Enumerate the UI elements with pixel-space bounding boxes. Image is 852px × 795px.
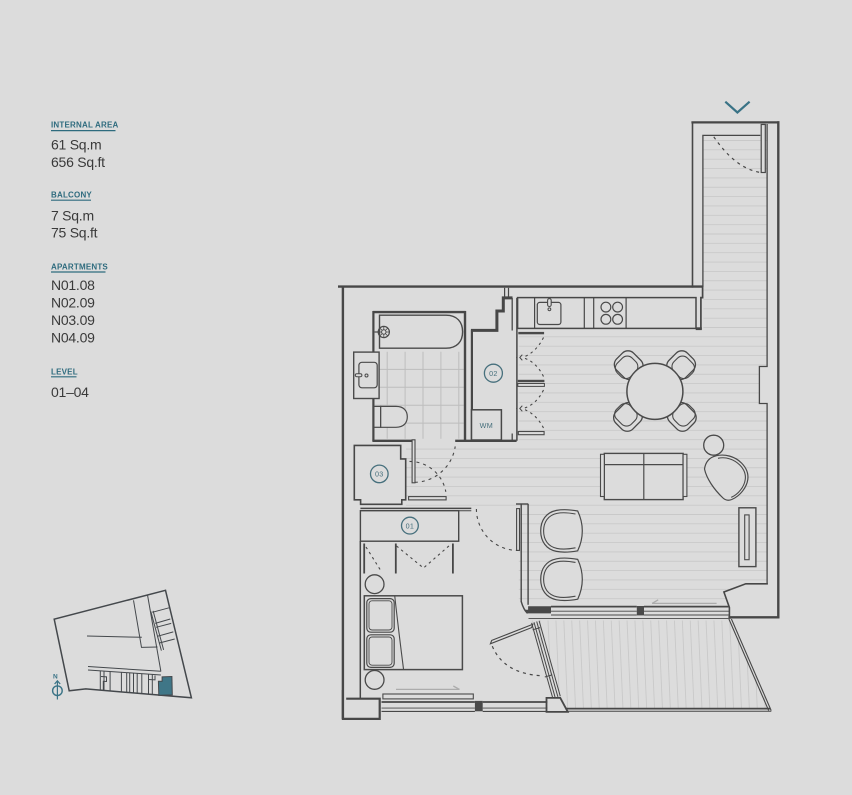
svg-text:N04.09: N04.09	[51, 330, 95, 346]
svg-text:02: 02	[489, 369, 498, 378]
svg-text:N02.09: N02.09	[51, 295, 95, 311]
svg-text:656 Sq.ft: 656 Sq.ft	[51, 154, 105, 170]
svg-text:APARTMENTS: APARTMENTS	[51, 263, 108, 272]
svg-text:01–04: 01–04	[51, 384, 89, 400]
svg-text:75 Sq.ft: 75 Sq.ft	[51, 225, 98, 241]
svg-text:7 Sq.m: 7 Sq.m	[51, 207, 94, 223]
svg-text:LEVEL: LEVEL	[51, 367, 78, 376]
svg-text:N03.09: N03.09	[51, 312, 95, 328]
svg-text:01: 01	[406, 521, 415, 530]
svg-text:BALCONY: BALCONY	[51, 191, 92, 200]
svg-text:N: N	[53, 674, 58, 681]
svg-text:WM: WM	[480, 421, 494, 430]
svg-text:61 Sq.m: 61 Sq.m	[51, 137, 101, 153]
svg-text:03: 03	[375, 470, 384, 479]
svg-text:INTERNAL AREA: INTERNAL AREA	[51, 121, 119, 130]
svg-text:N01.08: N01.08	[51, 277, 95, 293]
